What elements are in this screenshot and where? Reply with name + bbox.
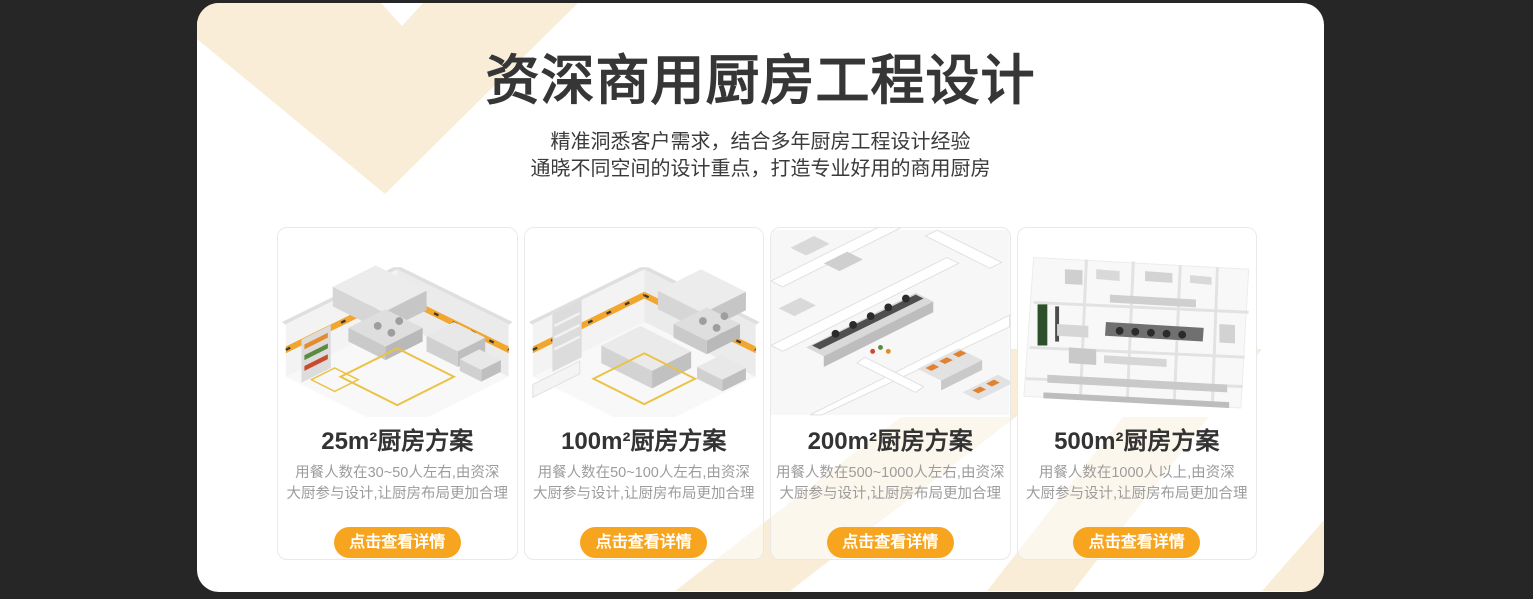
subtitle-line-1: 精准洞悉客户需求，结合多年厨房工程设计经验 bbox=[197, 129, 1324, 156]
kitchen-render-image bbox=[771, 228, 1010, 417]
content-panel: 资深商用厨房工程设计 精准洞悉客户需求，结合多年厨房工程设计经验 通晓不同空间的… bbox=[197, 3, 1324, 592]
kitchen-render-image bbox=[1018, 228, 1257, 417]
view-details-button[interactable]: 点击查看详情 bbox=[580, 527, 707, 558]
card-description: 用餐人数在1000人以上,由资深 大厨参与设计,让厨房布局更加合理 bbox=[1018, 463, 1257, 505]
plan-cards: 25m²厨房方案 用餐人数在30~50人左右,由资深 大厨参与设计,让厨房布局更… bbox=[277, 227, 1257, 560]
subtitle-line-2: 通晓不同空间的设计重点，打造专业好用的商用厨房 bbox=[197, 156, 1324, 183]
kitchen-isometric-illustration bbox=[1018, 228, 1257, 417]
card-description: 用餐人数在30~50人左右,由资深 大厨参与设计,让厨房布局更加合理 bbox=[278, 463, 517, 505]
page-subtitle: 精准洞悉客户需求，结合多年厨房工程设计经验 通晓不同空间的设计重点，打造专业好用… bbox=[197, 129, 1324, 183]
card-description: 用餐人数在50~100人左右,由资深 大厨参与设计,让厨房布局更加合理 bbox=[525, 463, 764, 505]
kitchen-isometric-illustration bbox=[278, 228, 517, 417]
page-title: 资深商用厨房工程设计 bbox=[197, 49, 1324, 114]
card-title: 100m²厨房方案 bbox=[525, 428, 764, 456]
kitchen-render-image bbox=[278, 228, 517, 417]
view-details-button[interactable]: 点击查看详情 bbox=[827, 527, 954, 558]
card-title: 500m²厨房方案 bbox=[1018, 428, 1257, 456]
view-details-button[interactable]: 点击查看详情 bbox=[1073, 527, 1200, 558]
header: 资深商用厨房工程设计 精准洞悉客户需求，结合多年厨房工程设计经验 通晓不同空间的… bbox=[197, 3, 1324, 183]
plan-card-100[interactable]: 100m²厨房方案 用餐人数在50~100人左右,由资深 大厨参与设计,让厨房布… bbox=[524, 227, 765, 560]
plan-card-200[interactable]: 200m²厨房方案 用餐人数在500~1000人左右,由资深 大厨参与设计,让厨… bbox=[770, 227, 1011, 560]
kitchen-isometric-illustration bbox=[771, 228, 1010, 417]
view-details-button[interactable]: 点击查看详情 bbox=[334, 527, 461, 558]
kitchen-render-image bbox=[525, 228, 764, 417]
card-description: 用餐人数在500~1000人左右,由资深 大厨参与设计,让厨房布局更加合理 bbox=[771, 463, 1010, 505]
diagonal-stripe-3 bbox=[1262, 473, 1324, 591]
card-title: 200m²厨房方案 bbox=[771, 428, 1010, 456]
plan-card-500[interactable]: 500m²厨房方案 用餐人数在1000人以上,由资深 大厨参与设计,让厨房布局更… bbox=[1017, 227, 1258, 560]
plan-card-25[interactable]: 25m²厨房方案 用餐人数在30~50人左右,由资深 大厨参与设计,让厨房布局更… bbox=[277, 227, 518, 560]
kitchen-isometric-illustration bbox=[525, 228, 764, 417]
card-title: 25m²厨房方案 bbox=[278, 428, 517, 456]
